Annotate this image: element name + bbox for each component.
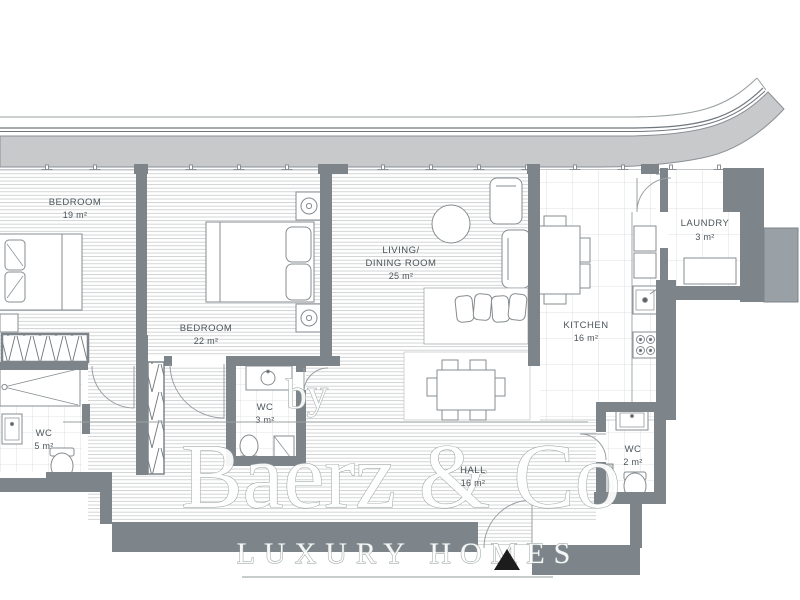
floor-corridor-left [88,362,136,422]
wall-bedroom2-living [320,168,332,356]
watermark-by: by [286,372,328,418]
wall-wc-guest-east [654,402,666,502]
label-laundry: LAUNDRY [681,218,730,229]
nightstand-bottom-bedroom2 [296,304,322,332]
wall-kitchen-east [656,280,676,420]
floor-plan-drawing: by Baerz & Co LUXURY HOMES BEDROOM 19 m²… [0,0,800,600]
floor-corridor-mid [164,366,226,422]
sink-wc-main [2,414,22,444]
laundry-unit [684,258,736,284]
bed-bedroom1 [0,234,82,310]
label-living-1: LIVING/ [382,245,419,256]
wall-bedroom2-south [226,356,340,366]
area-hall: 16 m² [461,478,486,488]
floor-plan-page: by Baerz & Co LUXURY HOMES BEDROOM 19 m²… [0,0,800,600]
area-bedroom2: 22 m² [194,336,219,346]
area-living: 25 m² [389,271,414,281]
nightstand-top-bedroom2 [296,192,322,220]
area-laundry: 3 m² [695,232,714,242]
wall-bedrooms-divider [136,168,147,335]
label-wc-middle: WC [257,402,274,413]
armchair [502,230,530,288]
chaise [490,178,522,224]
area-bedroom1: 19 m² [63,210,88,220]
wall-laundry-west-top [660,168,668,212]
wall-entry-east [630,502,642,548]
wall-stub-4 [641,164,659,174]
wall-bedroom2-door-stub [164,356,172,366]
area-wc-guest: 2 m² [623,457,642,467]
sink-wc-guest [616,410,648,430]
wall-bedroom1-south [0,362,88,370]
kitchen-cooktop [633,332,658,358]
label-bedroom1: BEDROOM [49,197,102,208]
label-hall: HALL [460,465,486,476]
area-kitchen: 16 m² [574,333,599,343]
wardrobe-bedroom1 [2,334,88,362]
label-wc-main: WC [36,428,53,439]
wall-living-kitchen [528,168,540,366]
watermark-tagline: LUXURY HOMES [237,537,580,570]
wall-wc-main-door-post [82,404,90,434]
label-kitchen: KITCHEN [563,320,608,331]
watermark-brand: Baerz & Co [181,425,620,527]
kitchen-sink [633,286,657,314]
shower-wc-main [0,368,80,406]
utility-shaft [764,228,798,302]
sofa [424,288,528,344]
area-wc-middle: 3 m² [255,415,274,425]
area-wc-main: 5 m² [34,441,53,451]
dining-set [404,352,530,420]
wall-bedrooms-divider-lower [136,335,148,475]
label-wc-guest: WC [625,444,642,455]
label-living-2: DINING ROOM [366,258,437,269]
round-table [432,205,470,243]
label-bedroom2: BEDROOM [180,323,233,334]
nightstand-bedroom1 [0,314,18,332]
wardrobe-hall [148,362,164,474]
bed-bedroom2 [206,222,314,302]
